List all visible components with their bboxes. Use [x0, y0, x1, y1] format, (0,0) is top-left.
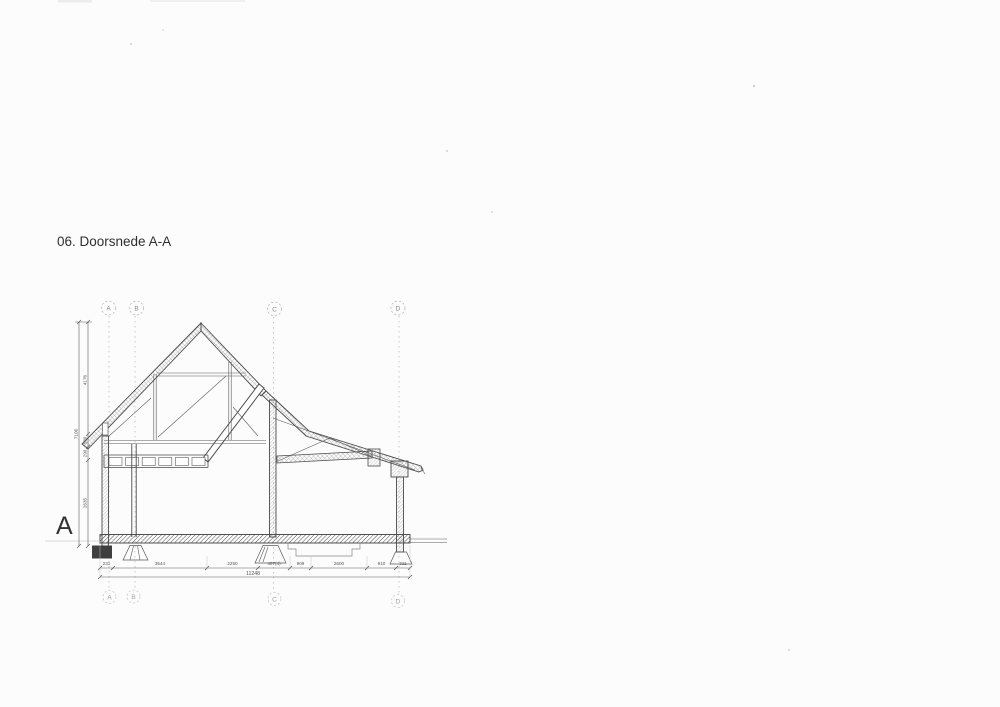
hdim-total: 11248: [246, 571, 260, 577]
vdim-segment: 580: [83, 436, 88, 444]
roof-band-right: [201, 323, 266, 396]
foundation-recess: [288, 543, 360, 556]
floor-joist: [159, 458, 172, 466]
grid-bubble-b-top: B: [130, 301, 144, 315]
hdim-segment: 2250: [227, 561, 238, 566]
grid-bubble-b-bottom: B: [127, 590, 140, 603]
floor-joist: [192, 458, 205, 466]
floor-joist: [142, 458, 155, 466]
main-roof: [82, 323, 266, 449]
beam-block: [368, 449, 380, 466]
grid-bubble-d-top: D: [391, 301, 405, 315]
svg-text:C: C: [272, 597, 277, 604]
floor-joist: [175, 458, 188, 466]
dimension-lines-bottom: 231 3544 2250 407(4) 909 2600 910 211 11…: [98, 545, 412, 579]
scanned-drawing-page: 06. Doorsnede A-A A B C D A: [0, 0, 1000, 707]
svg-text:B: B: [134, 306, 138, 313]
vdim-segment: 2635: [83, 497, 88, 508]
grid-bubbles-top: A B C D: [102, 301, 406, 316]
svg-text:C: C: [272, 307, 277, 314]
hdim-segment: 3544: [155, 561, 166, 566]
svg-text:B: B: [131, 594, 135, 601]
grid-bubble-c-top: C: [268, 302, 282, 316]
dimension-lines-left: 4176 580 290 2635 7106: [74, 320, 93, 548]
grid-bubble-a-bottom: A: [103, 591, 116, 604]
vdim-segment: 4176: [83, 374, 88, 385]
footing-left: [92, 546, 112, 559]
floor-joist: [109, 458, 122, 466]
sloped-beam: [277, 451, 372, 463]
vdim-total: 7106: [74, 428, 79, 439]
hdim-segment: 211: [399, 561, 407, 566]
grid-bubble-a-top: A: [102, 301, 116, 315]
truss-brace: [158, 376, 226, 437]
section-letter: A: [56, 512, 73, 540]
svg-text:A: A: [107, 595, 112, 602]
wall-c: [270, 400, 277, 537]
hdim-segment: 909: [297, 561, 305, 566]
left-wall: [102, 436, 109, 546]
beam-on-column-d: [391, 461, 408, 477]
scan-specks: [58, 0, 790, 651]
vdim-segment: 290: [83, 449, 88, 457]
hdim-segment: 910: [378, 561, 386, 566]
building-section: [45, 323, 447, 564]
footings: [92, 540, 412, 564]
walls: [102, 400, 408, 552]
svg-text:A: A: [106, 306, 111, 313]
grid-bubble-d-bottom: D: [392, 595, 405, 608]
hdim-segment: 231: [103, 561, 111, 566]
section-drawing-canvas: 06. Doorsnede A-A A B C D A: [0, 0, 1000, 707]
attic-floor: [104, 455, 208, 468]
footing-b: [123, 546, 148, 561]
hdim-segment: 2600: [334, 561, 345, 566]
roof-band-left: [82, 323, 201, 449]
hdim-segment: 407(4): [267, 561, 281, 566]
grid-bubble-c-bottom: C: [268, 593, 281, 606]
grid-bubbles-bottom: A B C D: [103, 590, 405, 608]
svg-text:D: D: [396, 599, 401, 606]
page-title: 06. Doorsnede A-A: [57, 234, 171, 249]
eave-block-left: [103, 423, 109, 435]
interior-diagonal-beam: [203, 384, 264, 462]
svg-text:D: D: [396, 306, 401, 313]
